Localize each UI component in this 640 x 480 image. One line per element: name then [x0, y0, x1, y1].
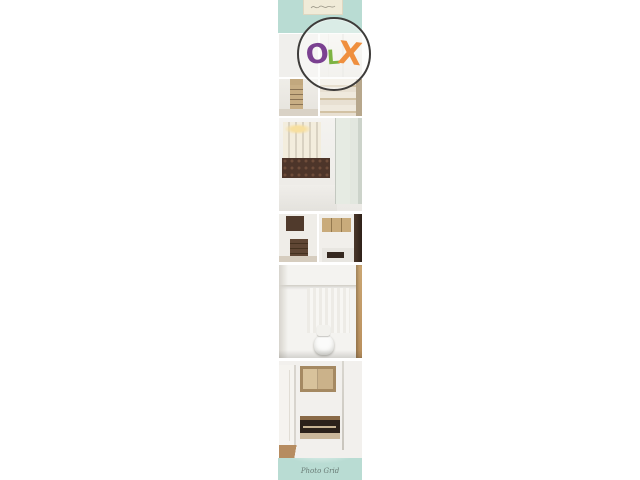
watermark-text: Photo Grid — [301, 467, 339, 475]
tufted-headboard — [282, 158, 330, 178]
white-door — [279, 365, 296, 446]
bedroom-floor — [279, 185, 337, 211]
script-squiggle-icon — [309, 3, 337, 11]
photo-kitchenette — [319, 214, 362, 262]
lower-tv-cabinet — [300, 416, 340, 438]
photo-wall-unit — [279, 361, 362, 458]
bottom-accent-band: Photo Grid — [278, 458, 362, 480]
upper-wall-cabinet — [300, 366, 337, 392]
kitchen-counter — [322, 248, 355, 262]
bedroom-wardrobe — [335, 118, 362, 204]
photo-bathroom — [279, 265, 362, 358]
olx-letter-x: X — [337, 37, 365, 71]
top-script-label — [303, 0, 343, 15]
bathroom-door-frame — [356, 265, 362, 358]
bathroom-left-wall — [279, 265, 288, 358]
lit-wall-niches — [283, 122, 321, 158]
photo-dresser-corner — [279, 214, 317, 262]
toilet — [314, 335, 334, 355]
photo-bedroom — [279, 118, 362, 211]
olx-logo: O L X — [297, 17, 371, 91]
